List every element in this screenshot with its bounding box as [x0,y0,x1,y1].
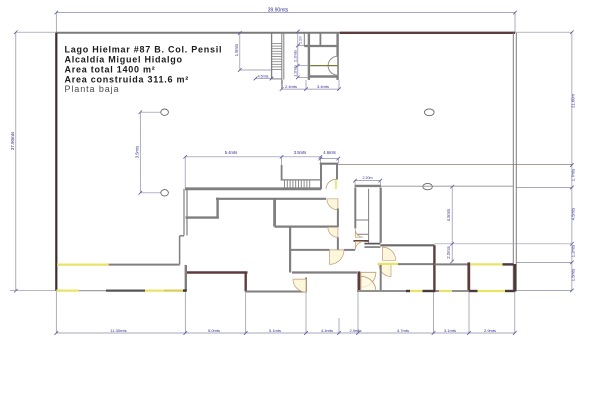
svg-text:3.5mts: 3.5mts [294,150,307,155]
svg-text:4.4mts: 4.4mts [321,328,333,333]
svg-text:21.60m: 21.60m [571,94,576,108]
svg-text:11.30mts: 11.30mts [110,328,126,333]
svg-text:2.9mts: 2.9mts [484,328,496,333]
svg-text:3.1mts: 3.1mts [444,328,456,333]
svg-text:Area total 1400 m²: Area total 1400 m² [65,65,156,75]
svg-text:Planta baja: Planta baja [65,84,120,94]
svg-text:5.0mts: 5.0mts [208,328,220,333]
svg-text:37.90mts: 37.90mts [10,131,15,150]
svg-text:5.1mts: 5.1mts [269,328,281,333]
svg-text:2.2mts: 2.2mts [292,50,297,62]
svg-text:Lago Hielmar #87 B. Col. Pensi: Lago Hielmar #87 B. Col. Pensil [65,45,223,55]
svg-text:1.7mts: 1.7mts [571,169,576,182]
svg-text:4.5mts: 4.5mts [571,208,576,221]
svg-text:39.90mts: 39.90mts [268,8,289,14]
svg-text:2.20m: 2.20m [363,176,373,180]
svg-text:4.5mts: 4.5mts [446,209,451,222]
svg-text:4.7mts: 4.7mts [397,328,409,333]
svg-text:Alcaldía Miguel Hidalgo: Alcaldía Miguel Hidalgo [65,55,183,65]
svg-text:2.2mts: 2.2mts [446,246,451,259]
svg-text:4.5mts: 4.5mts [258,74,269,78]
svg-text:3.5mts: 3.5mts [134,146,139,159]
svg-text:1.5mts: 1.5mts [571,269,576,282]
svg-text:1.9mts: 1.9mts [234,44,239,57]
svg-text:3.4mts: 3.4mts [317,84,329,89]
svg-text:1.2mts: 1.2mts [571,245,576,258]
svg-text:1.1m: 1.1m [299,36,303,44]
svg-text:Area construida 311.6 m²: Area construida 311.6 m² [65,75,190,85]
svg-text:2.0mts: 2.0mts [349,328,361,333]
svg-text:4.6mts: 4.6mts [323,150,336,155]
svg-text:5.4mts: 5.4mts [225,150,238,155]
svg-text:2.4mts: 2.4mts [285,84,297,89]
